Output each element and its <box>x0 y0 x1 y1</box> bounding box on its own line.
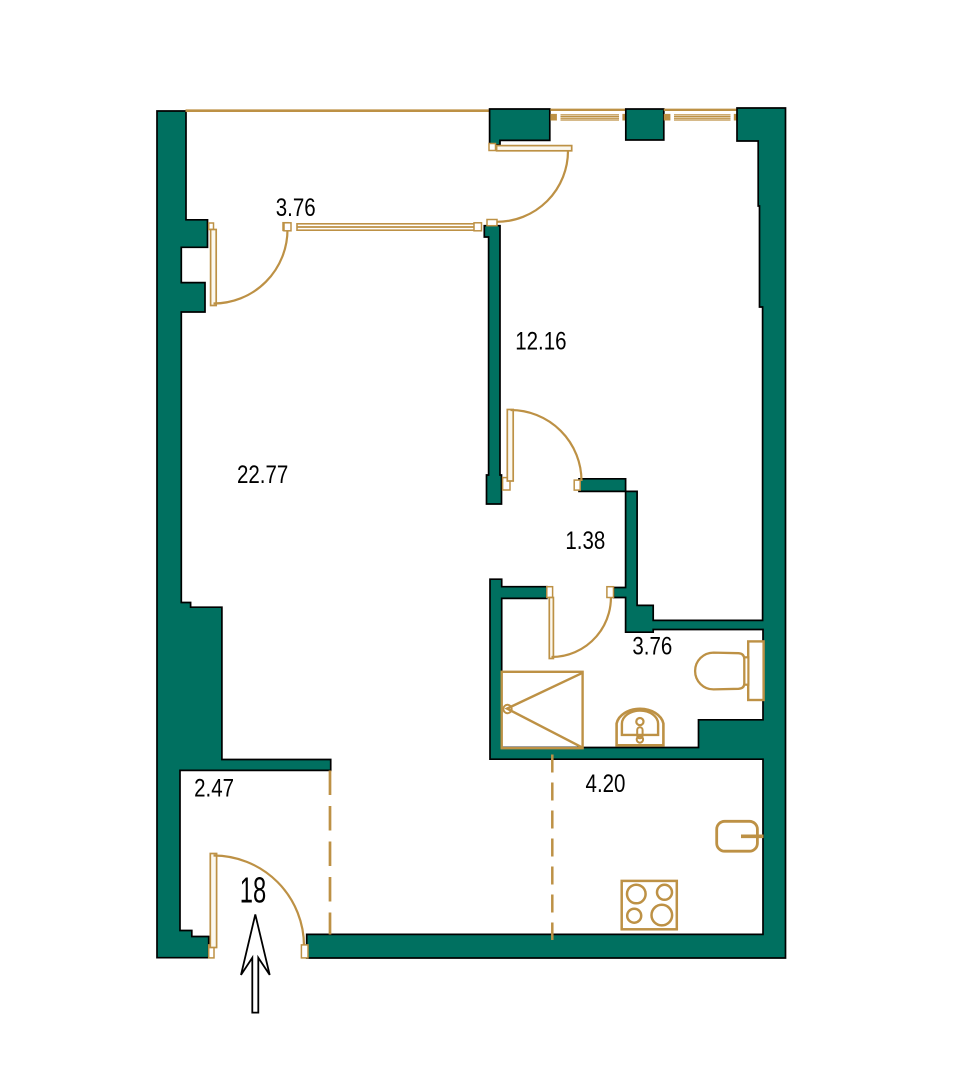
svg-text:4.20: 4.20 <box>586 769 626 797</box>
svg-text:2.47: 2.47 <box>194 774 234 802</box>
svg-text:18: 18 <box>240 871 266 911</box>
svg-text:12.16: 12.16 <box>515 326 566 354</box>
svg-text:3.76: 3.76 <box>276 193 316 221</box>
svg-text:1.38: 1.38 <box>565 526 605 554</box>
svg-text:3.76: 3.76 <box>632 631 672 659</box>
svg-text:22.77: 22.77 <box>237 460 288 488</box>
